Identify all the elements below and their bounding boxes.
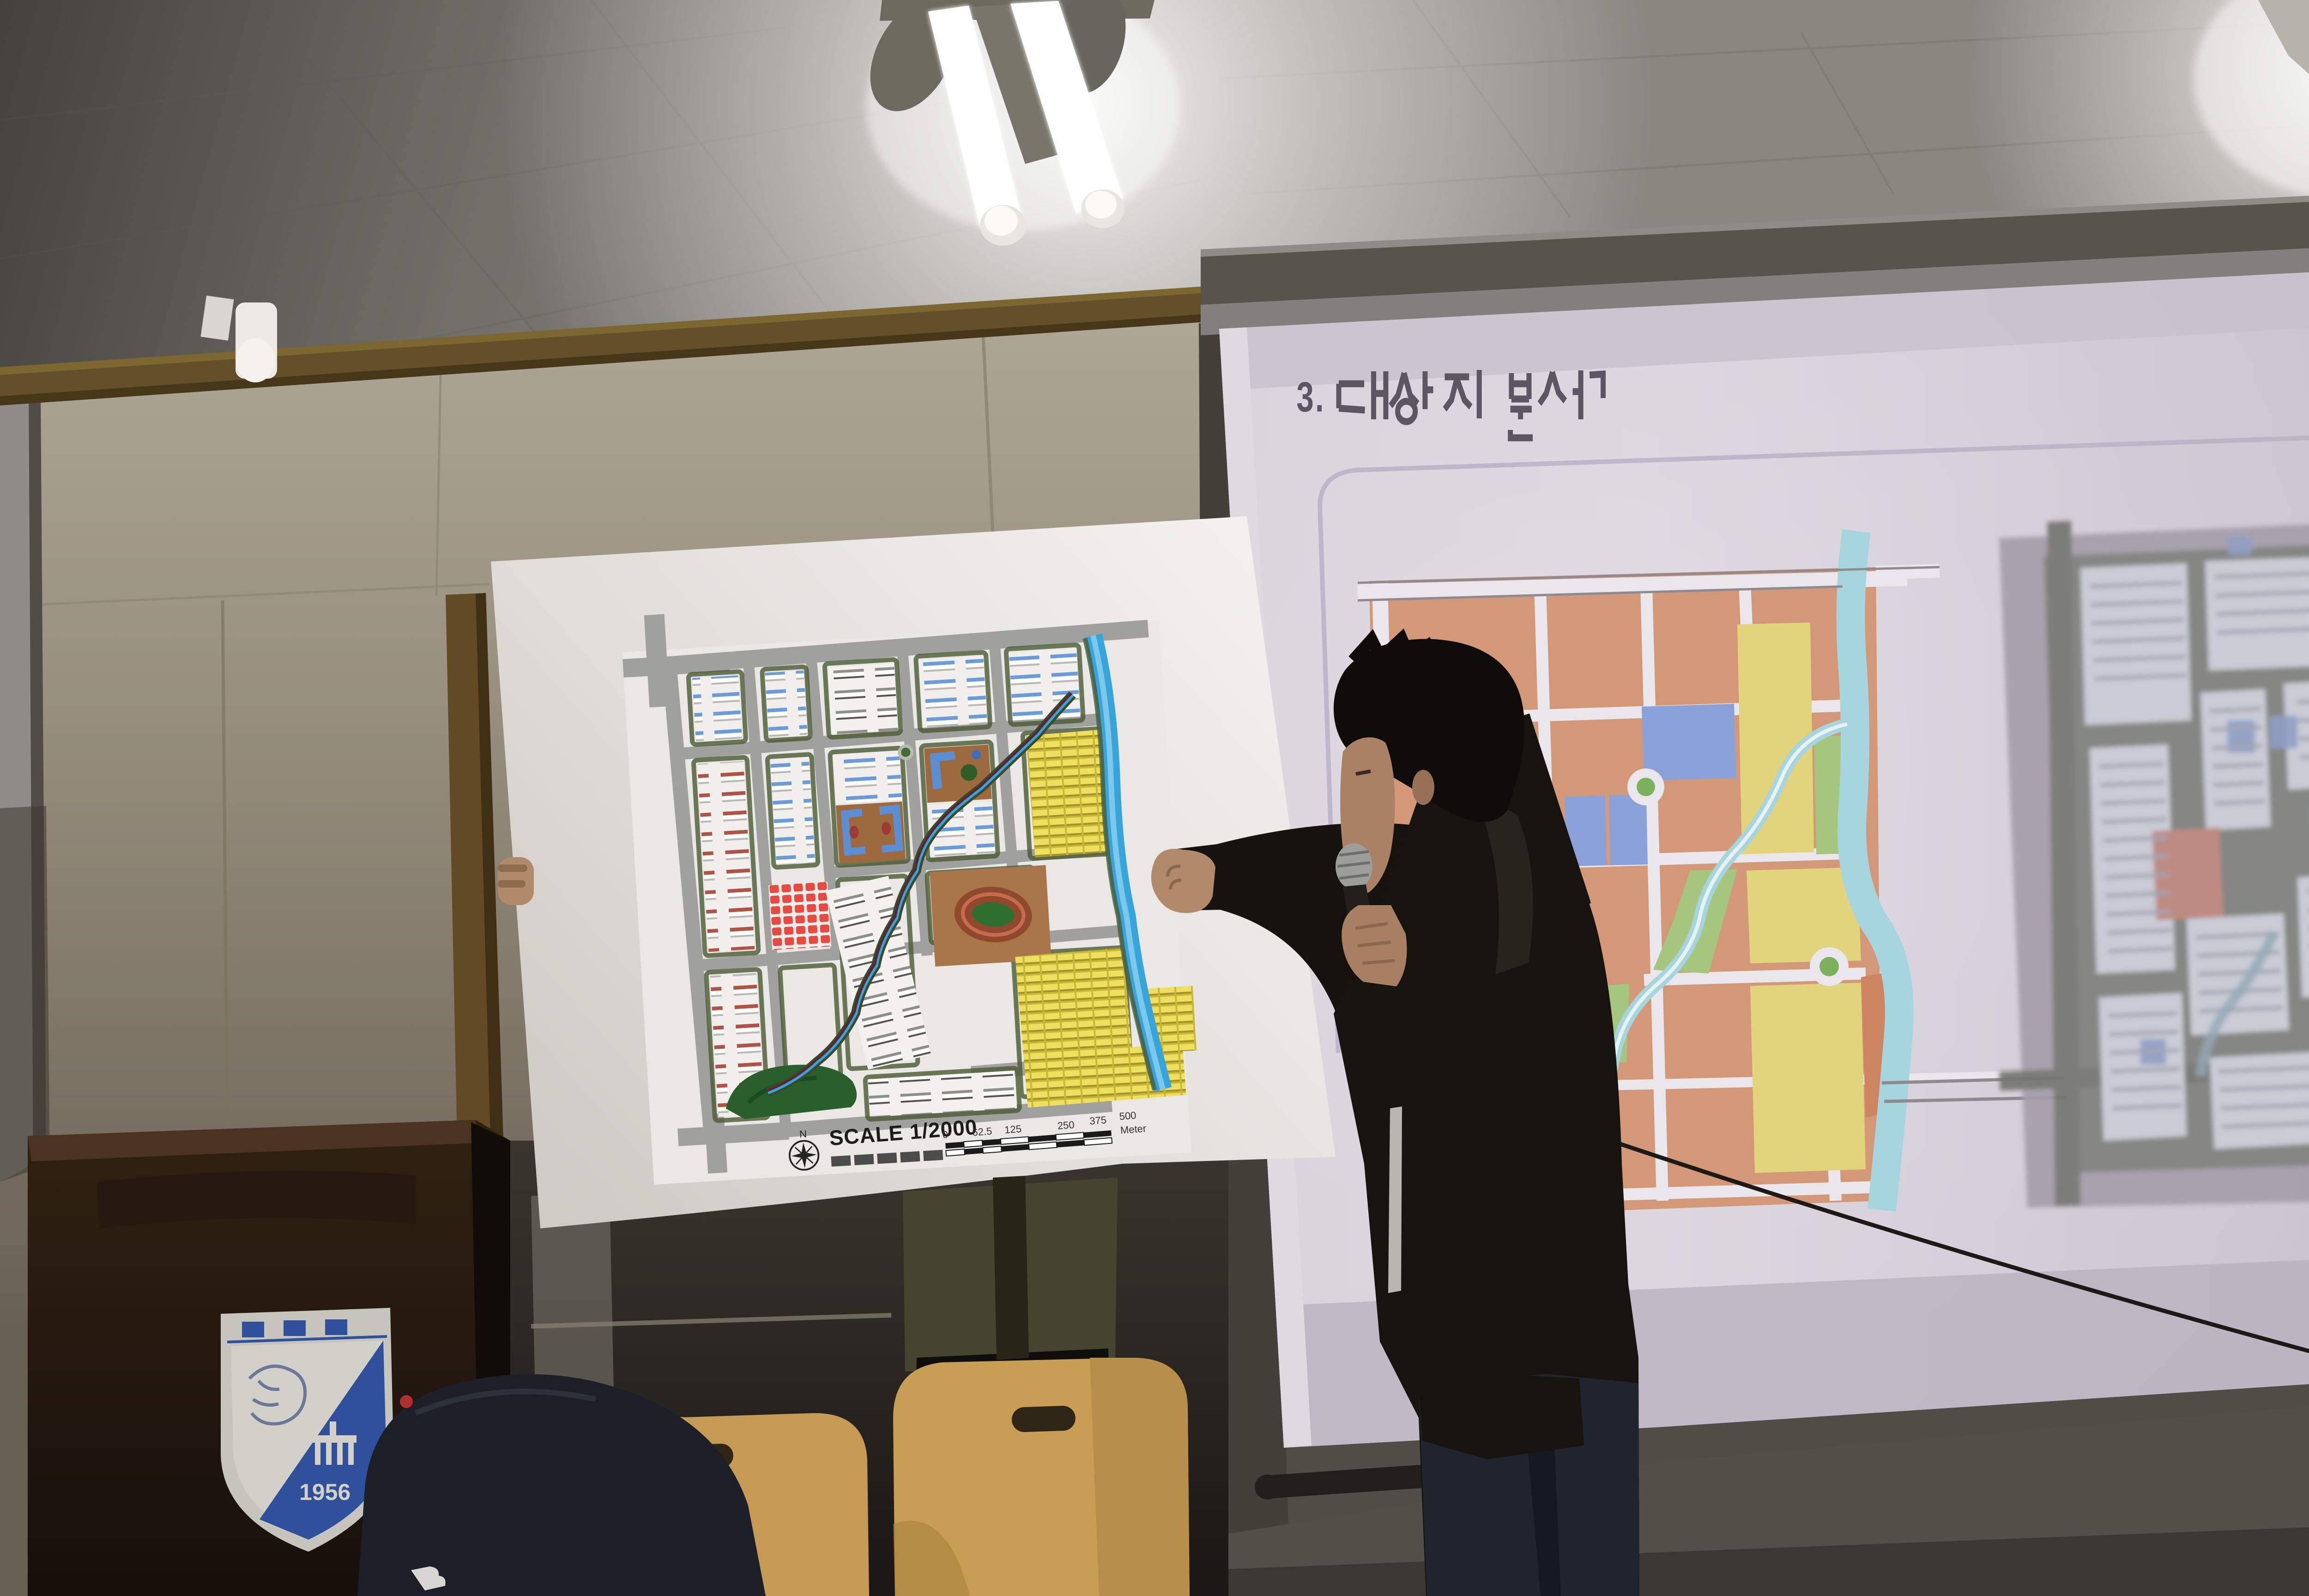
svg-text:500: 500	[1119, 1109, 1137, 1122]
svg-text:125: 125	[1004, 1123, 1022, 1136]
svg-text:0: 0	[942, 1129, 949, 1141]
svg-text:N: N	[799, 1128, 807, 1140]
svg-text:Meter: Meter	[1120, 1123, 1147, 1136]
svg-text:3.: 3.	[1296, 374, 1325, 421]
svg-text:250: 250	[1057, 1119, 1075, 1132]
svg-text:1956: 1956	[299, 1479, 351, 1505]
svg-text:375: 375	[1089, 1114, 1107, 1127]
svg-text:62.5: 62.5	[972, 1125, 992, 1138]
